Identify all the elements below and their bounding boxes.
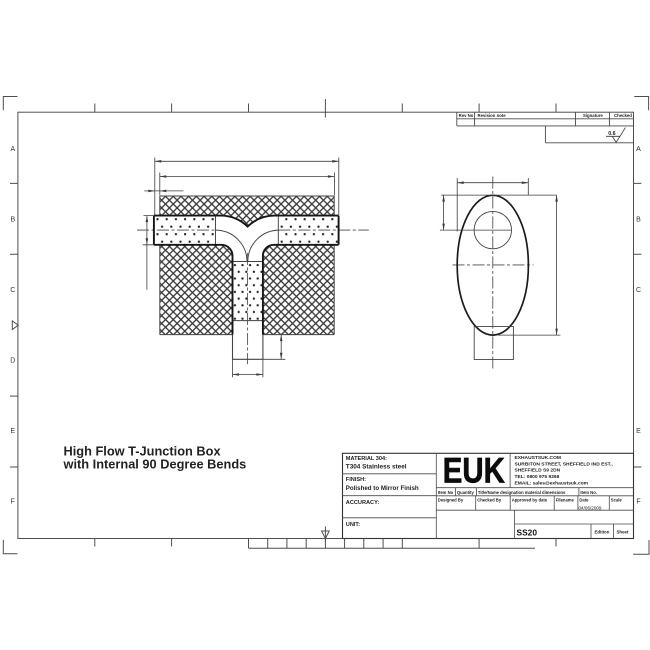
svg-text:Date: Date xyxy=(579,498,589,503)
svg-text:Item No.: Item No. xyxy=(580,490,597,495)
svg-text:A: A xyxy=(636,146,641,153)
svg-text:SHEFFIELD S9 2DN: SHEFFIELD S9 2DN xyxy=(515,468,561,474)
svg-text:Sheet: Sheet xyxy=(617,530,629,535)
svg-text:Title/Name designation materia: Title/Name designation material dimensio… xyxy=(478,490,566,495)
svg-text:Checked By: Checked By xyxy=(477,498,502,503)
svg-text:SURBITON STREET, SHEFFIELD IND: SURBITON STREET, SHEFFIELD IND EST., xyxy=(515,461,614,467)
svg-text:MATERIAL 304:: MATERIAL 304: xyxy=(346,456,387,462)
svg-text:Checked: Checked xyxy=(614,113,632,118)
svg-text:E: E xyxy=(636,428,641,435)
svg-text:Rev No: Rev No xyxy=(459,113,474,118)
svg-text:T304 Stainless steel: T304 Stainless steel xyxy=(346,463,407,470)
svg-text:Revision note: Revision note xyxy=(478,113,507,118)
svg-text:D: D xyxy=(10,358,15,365)
svg-text:EXHAUSTSUK.COM: EXHAUSTSUK.COM xyxy=(515,455,561,461)
svg-text:Filename: Filename xyxy=(556,498,575,503)
svg-text:C: C xyxy=(10,287,15,294)
svg-text:SS20: SS20 xyxy=(517,527,538,537)
svg-text:B: B xyxy=(636,217,641,224)
svg-text:Designed By: Designed By xyxy=(438,498,464,503)
svg-text:FINISH:: FINISH: xyxy=(346,477,366,483)
svg-text:Scale: Scale xyxy=(611,498,623,503)
svg-text:Polished to Mirror Finish: Polished to Mirror Finish xyxy=(346,485,419,492)
svg-text:E: E xyxy=(10,428,15,435)
svg-text:EMAIL: sales@exhaustsuk.com: EMAIL: sales@exhaustsuk.com xyxy=(515,480,589,486)
svg-text:EUK: EUK xyxy=(443,451,505,491)
svg-text:A: A xyxy=(10,146,15,153)
svg-text:F: F xyxy=(11,499,15,506)
svg-text:Approved by date: Approved by date xyxy=(512,498,548,503)
svg-text:Quantity: Quantity xyxy=(457,490,475,495)
svg-text:TEL: 0800 975 9268: TEL: 0800 975 9268 xyxy=(515,474,560,480)
svg-text:Edition: Edition xyxy=(595,530,610,535)
svg-text:Item No: Item No xyxy=(438,490,454,495)
svg-text:ACCURACY:: ACCURACY: xyxy=(346,500,380,506)
svg-text:C: C xyxy=(636,287,641,294)
svg-text:F: F xyxy=(636,499,640,506)
svg-text:UNIT:: UNIT: xyxy=(346,522,360,528)
svg-text:0.6: 0.6 xyxy=(608,131,616,137)
svg-text:04/06/2009: 04/06/2009 xyxy=(579,506,602,511)
svg-text:B: B xyxy=(10,217,15,224)
svg-text:with Internal 90 Degree Bends: with Internal 90 Degree Bends xyxy=(63,457,247,472)
svg-text:Signature: Signature xyxy=(583,113,603,118)
